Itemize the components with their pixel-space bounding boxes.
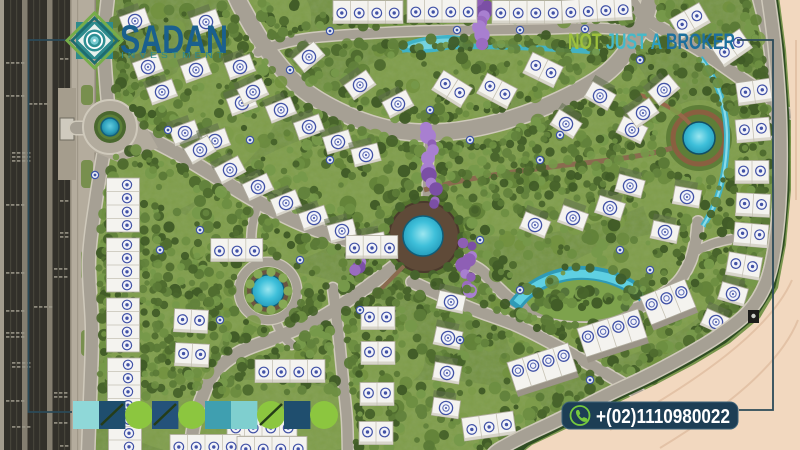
svg-text:INVESTMENT: INVESTMENT <box>121 51 227 60</box>
svg-text:+(02)1110980022: +(02)1110980022 <box>596 406 730 428</box>
svg-text:NOT JUST A BROKER: NOT JUST A BROKER <box>568 29 735 54</box>
